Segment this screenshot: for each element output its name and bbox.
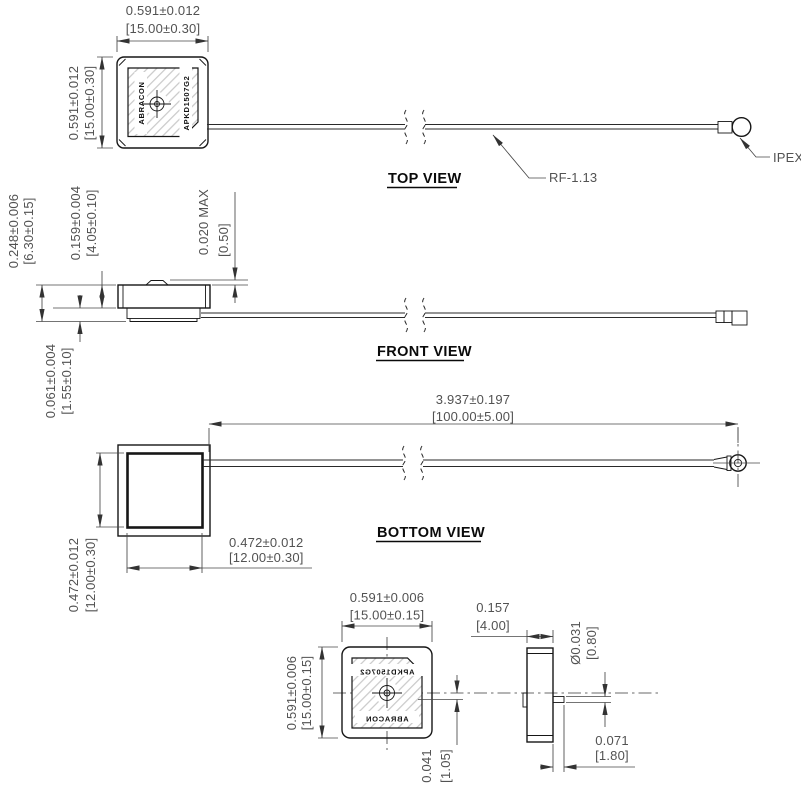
pin-length-inches: 0.071 (595, 733, 629, 748)
pad-height-dimension: 0.472±0.012 [12.00±0.30] (66, 453, 124, 612)
top-height-inches: 0.591±0.012 (66, 66, 81, 140)
pin-offset-inches: 0.041 (419, 749, 434, 783)
cable-length-inches: 3.937±0.197 (436, 392, 510, 407)
pad-width-dimension: 0.472±0.012 [12.00±0.30] (127, 533, 312, 573)
pin-protrusion-mm: [0.50] (216, 223, 231, 257)
pin-length-dimension: 0.071 [1.80] (540, 705, 635, 772)
adhesive-layer (130, 319, 197, 322)
bottom-view-patch (118, 445, 210, 536)
feed-pin (553, 697, 564, 703)
top-width-mm: [15.00±0.30] (126, 21, 201, 36)
front-patch-height-dimension: 0.159±0.004 [4.05±0.10] (53, 186, 116, 308)
antenna-dimension-drawing: ABRACON APKD1507G2 0.591±0.012 [15.00±0.… (0, 0, 801, 795)
cable-length-mm: [100.00±5.00] (432, 409, 514, 424)
top-width-inches: 0.591±0.012 (126, 3, 200, 18)
svg-text:FRONT VIEW: FRONT VIEW (377, 344, 472, 360)
ipex-connector-side (732, 311, 747, 325)
ipex-connector-head (732, 118, 751, 137)
overall-height-inches: 0.248±0.006 (6, 194, 21, 268)
overall-height-mm: [6.30±0.15] (21, 197, 36, 264)
cable-break-symbol (405, 110, 408, 144)
top-view: ABRACON APKD1507G2 0.591±0.012 [15.00±0.… (66, 3, 801, 188)
connector-type-label: IPEX (773, 150, 801, 165)
bottom-view-title: BOTTOM VIEW (376, 525, 485, 542)
front-view-title: FRONT VIEW (376, 344, 472, 361)
front-view-cable (201, 298, 747, 332)
bottom-view-cable (203, 427, 760, 489)
cable-length-dimension: 3.937±0.197 [100.00±5.00] (209, 392, 738, 452)
back-view: APKD1507G2 ABRACON 0.591±0.006 [15.00±0.… (284, 590, 660, 783)
front-pcb-thickness-dimension: 0.061±0.004 [1.55±0.10] (43, 295, 80, 418)
top-height-mm: [15.00±0.30] (82, 66, 97, 141)
top-view-patch-outline: ABRACON APKD1507G2 (117, 57, 208, 148)
pin-offset-mm: [1.05] (438, 749, 453, 783)
pin-diameter-mm: [0.80] (584, 626, 599, 660)
back-height-dimension: 0.591±0.006 [15.00±0.15] (284, 647, 338, 738)
cable-type-label: RF-1.13 (549, 170, 597, 185)
back-width-mm: [15.00±0.15] (350, 608, 425, 623)
pad-width-inches: 0.472±0.012 (229, 535, 303, 550)
ipex-connector-body (718, 122, 732, 134)
brand-marking-mirrored: ABRACON (365, 715, 408, 724)
connector-callout: IPEX (740, 138, 801, 165)
top-view-title: TOP VIEW (387, 171, 462, 188)
pin-diameter-inches: Ø0.031 (568, 621, 583, 665)
front-view: 0.248±0.006 [6.30±0.15] 0.159±0.004 [4.0… (6, 186, 747, 418)
svg-text:BOTTOM VIEW: BOTTOM VIEW (377, 525, 485, 541)
svg-text:TOP VIEW: TOP VIEW (388, 171, 462, 187)
pin-length-mm: [1.80] (595, 748, 629, 763)
brand-marking: ABRACON (137, 81, 146, 124)
pad-width-mm: [12.00±0.30] (229, 550, 304, 565)
thickness-dimension: 0.157 [4.00] (471, 600, 553, 643)
pin-offset-dimension: 0.041 [1.05] (418, 675, 463, 783)
top-view-cable (207, 110, 751, 144)
pcb-side (127, 308, 200, 319)
side-profile (523, 648, 564, 742)
back-width-inches: 0.591±0.006 (350, 590, 424, 605)
front-pin-protrusion-dimension: 0.020 MAX [0.50] (170, 189, 248, 303)
thickness-inches: 0.157 (476, 600, 510, 615)
cable-callout: RF-1.13 (493, 135, 597, 185)
front-overall-height-dimension: 0.248±0.006 [6.30±0.15] (6, 194, 126, 322)
back-height-inches: 0.591±0.006 (284, 656, 299, 730)
patch-height-inches: 0.159±0.004 (68, 186, 83, 260)
pad-height-mm: [12.00±0.30] (83, 538, 98, 613)
pcb-thickness-inches: 0.061±0.004 (43, 344, 58, 418)
pad-height-inches: 0.472±0.012 (66, 538, 81, 612)
back-view-patch: APKD1507G2 ABRACON (342, 647, 432, 738)
top-view-height-dimension: 0.591±0.012 [15.00±0.30] (66, 57, 113, 148)
pin-protrusion-inches: 0.020 MAX (196, 189, 211, 255)
thickness-mm: [4.00] (476, 618, 510, 633)
back-height-mm: [15.00±0.15] (299, 656, 314, 731)
bottom-view: 3.937±0.197 [100.00±5.00] 0.472±0.012 [1… (66, 392, 760, 612)
model-marking-mirrored: APKD1507G2 (360, 668, 415, 677)
front-view-body (118, 281, 210, 322)
technical-drawing-page: ABRACON APKD1507G2 0.591±0.012 [15.00±0.… (0, 0, 801, 795)
top-view-width-dimension: 0.591±0.012 [15.00±0.30] (117, 3, 208, 52)
patch-height-mm: [4.05±0.10] (84, 189, 99, 256)
ground-pad (128, 454, 203, 528)
pcb-thickness-mm: [1.55±0.10] (59, 347, 74, 414)
back-width-dimension: 0.591±0.006 [15.00±0.15] (342, 590, 432, 642)
model-marking: APKD1507G2 (182, 76, 191, 131)
cable-break-symbol (423, 110, 426, 144)
pin-diameter-dimension: Ø0.031 [0.80] (566, 621, 611, 727)
